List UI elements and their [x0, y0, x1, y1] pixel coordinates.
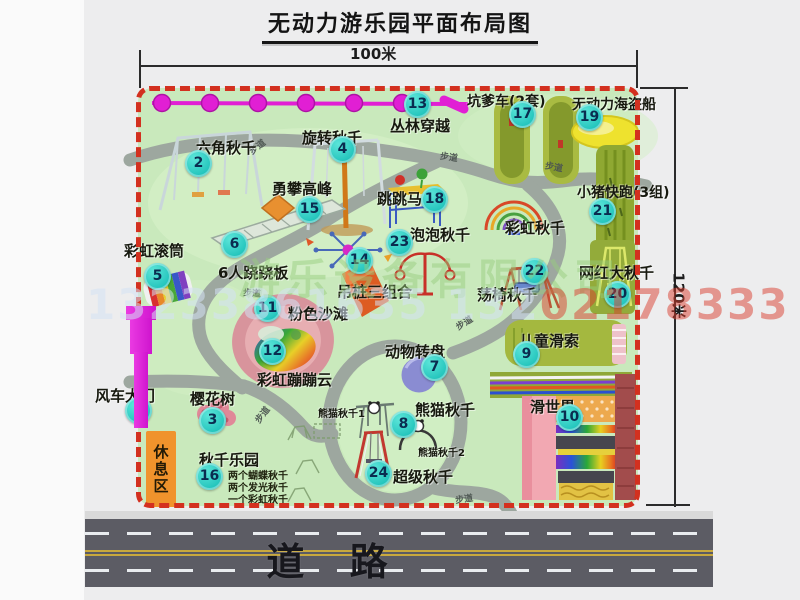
badge-jungle-crossing: 13 — [404, 91, 431, 118]
badge-animal-turntable: 7 — [421, 354, 448, 381]
label-peak-climbing: 勇攀高峰 — [272, 178, 332, 199]
rest-area: 休息区 — [146, 431, 176, 507]
badge-hexagon-swing: 2 — [185, 150, 212, 177]
label-rainbow-roller: 彩虹滚筒 — [124, 240, 184, 261]
label-jungle-crossing: 丛林穿越 — [390, 115, 450, 136]
badge-rotating-swing: 4 — [329, 136, 356, 163]
dimension-line-top — [140, 65, 638, 67]
badge-kids-zipline: 9 — [513, 341, 540, 368]
watermark-phone-left: 13233861635 132 — [86, 280, 540, 329]
page-title: 无动力游乐园平面布局图 — [262, 6, 538, 44]
dimension-tick-top-left — [139, 50, 141, 88]
path-label: 步道 — [454, 491, 474, 506]
title-wrap: 无动力游乐园平面布局图 — [0, 6, 800, 44]
dimension-tick-right-top — [640, 87, 688, 89]
road: 道 路 — [85, 519, 713, 587]
windmill-gate-post — [134, 352, 148, 428]
slide-world-illustration — [490, 372, 636, 500]
road-shoulder — [85, 511, 713, 519]
badge-piggy-run: 21 — [589, 198, 616, 225]
watermark-phone-right: 02178333 — [540, 280, 790, 329]
park-layout-map-image: 无动力游乐园平面布局图 100米 120米 — [0, 0, 800, 600]
left-margin — [0, 0, 84, 600]
label-rainbow-swing: 彩虹秋千 — [505, 217, 565, 238]
badge-slide-world: 10 — [556, 404, 583, 431]
path-label: 步道 — [439, 149, 459, 164]
badge-pit-car: 17 — [509, 101, 536, 128]
label-piggy-run: 小猪快跑(3组) — [577, 182, 670, 202]
label-bubble-swing: 泡泡秋千 — [410, 224, 470, 245]
dimension-tick-right-bottom — [646, 504, 690, 506]
label-panda-swing: 熊猫秋千 — [415, 399, 475, 420]
label-rainbow-bouncing-cloud: 彩虹蹦蹦云 — [257, 369, 332, 390]
badge-jumping-horse: 18 — [421, 186, 448, 213]
badge-super-swing: 24 — [365, 460, 392, 487]
label-panda-swing-2: 熊猫秋千2 — [418, 444, 465, 459]
badge-panda-swing: 8 — [390, 411, 417, 438]
badge-rainbow-bouncing-cloud: 12 — [259, 338, 286, 365]
dimension-tick-top-right — [636, 50, 638, 88]
label-super-swing: 超级秋千 — [393, 466, 453, 487]
label-jumping-horse: 跳跳马 — [377, 188, 422, 209]
dimension-width-label: 100米 — [350, 43, 396, 64]
badge-peak-climbing: 15 — [296, 196, 323, 223]
badge-cherry-tree: 3 — [199, 407, 226, 434]
label-cherry-tree: 樱花树 — [190, 388, 235, 409]
road-label: 道 路 — [85, 531, 585, 586]
badge-pirate-ship: 19 — [576, 104, 603, 131]
label-panda-swing-1: 熊猫秋千1 — [318, 405, 365, 420]
rest-area-label: 休息区 — [151, 444, 172, 495]
badge-swing-park: 16 — [196, 463, 223, 490]
watermark-phone: 13233861635 13202178333 — [86, 280, 790, 329]
swing-park-note-3: 一个彩虹秋千 — [228, 491, 288, 506]
